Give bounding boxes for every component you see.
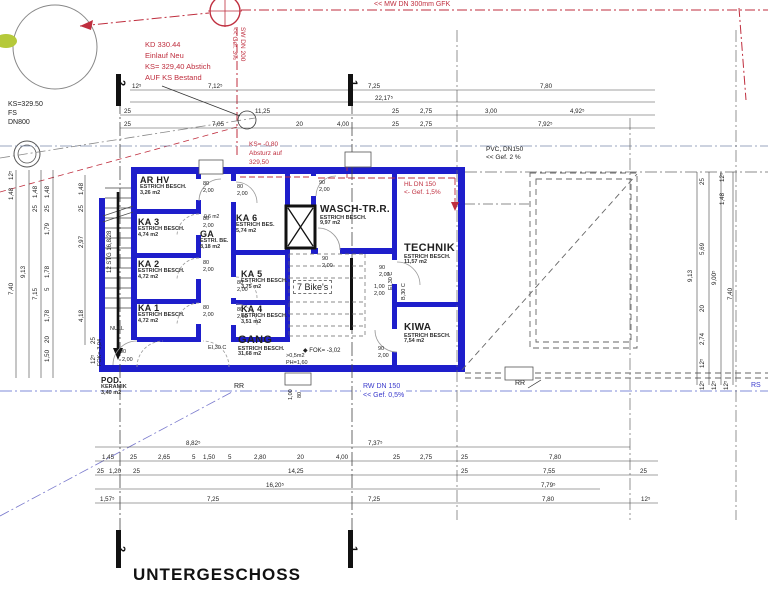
logo-blob: [0, 34, 17, 48]
note-pvc: PVC, DN150 << Gef. 2 %: [486, 146, 523, 162]
dim-label: 5,69: [699, 243, 706, 255]
dim-label: 25: [133, 468, 140, 475]
dim-label: 7,80: [542, 496, 554, 503]
floor-plan-canvas: AR HV ESTRICH BESCH. 3,26 m2 KA 3 ESTRIC…: [0, 0, 768, 593]
note-rr-2: RR: [515, 380, 525, 389]
dim-label: 2,00: [237, 191, 248, 197]
room-label-ka4: KA 4 ESTRICH BESCH. 3,51 m2: [241, 305, 287, 326]
dim-label: 2,00: [374, 291, 385, 297]
dim-label: 12⁵: [723, 381, 730, 390]
dim-label: 12⁵: [699, 359, 706, 368]
room-label-gang: GANG ESTRICH BESCH. 31,68 m2: [238, 335, 284, 358]
room-label-ar-hv: AR HV ESTRICH BESCH. 3,26 m2: [140, 176, 186, 197]
dim-label: 1,00: [374, 284, 385, 290]
dim-label: 7,12⁵: [208, 83, 223, 90]
dim-label: 16,20⁵: [266, 482, 284, 489]
dim-label: 25: [393, 454, 400, 461]
note-mw-dn300: << MW DN 300mm GFK: [374, 1, 450, 10]
dim-label: 25: [32, 205, 39, 212]
dim-label: 2,00: [322, 263, 333, 269]
door-gap-wasch-top: [311, 176, 316, 196]
dim-label: 12⁵: [90, 355, 97, 364]
dim-label: 80: [237, 307, 243, 313]
dim-label: 7,25: [368, 496, 380, 503]
dim-label: 90: [319, 180, 325, 186]
dim-label: 12⁵: [132, 83, 141, 90]
door-gap-arhv: [196, 179, 201, 200]
dim-label: 3,00: [485, 108, 497, 115]
dim-label: EI,30 C: [388, 272, 394, 290]
dim-label: 12⁵: [699, 381, 706, 390]
dim-label: 1,45: [102, 454, 114, 461]
rr-arrow: [528, 380, 541, 388]
room-label-ga: GA ESTRI. BE. 8,18 m2: [200, 230, 228, 251]
dim-label: 2,75: [420, 121, 432, 128]
room-label-ka3: KA 3 ESTRICH BESCH. 4,74 m2: [138, 218, 184, 239]
door-gap-kiwa: [392, 329, 397, 352]
dim-label: 20: [297, 454, 304, 461]
dim-label: 4,18: [78, 310, 85, 322]
dim-label: 2,00: [237, 287, 248, 293]
dim-label: 25: [44, 205, 51, 212]
dim-label: 1,57⁵: [100, 496, 115, 503]
dim-label: 2,00: [237, 314, 248, 320]
door-gap-ka5: [231, 277, 236, 298]
wall-technik-bottom: [392, 302, 465, 307]
door-gap-ka1: [196, 303, 201, 324]
room-label-technik: TECHNIK ESTRICH BESCH. 11,57 m2: [404, 243, 455, 266]
dim-label: 1,48: [44, 186, 51, 198]
dim-label: 2,00: [378, 353, 389, 359]
wall-outer-right: [458, 167, 465, 372]
dim-label: EI,30 C: [208, 345, 226, 351]
dim-label: 2,80: [254, 454, 266, 461]
dim-label: 25: [392, 108, 399, 115]
dim-label: 25: [461, 468, 468, 475]
section-number: 1: [347, 80, 359, 86]
dim-label: 2,75: [420, 454, 432, 461]
section-number: 2: [115, 80, 127, 86]
room-label-wasch: WASCH-TR.R. ESTRICH BESCH. 9,97 m2: [320, 205, 390, 227]
wall-div-ka3-ka2: [131, 253, 201, 258]
door-gap-ka2: [196, 258, 201, 279]
dim-label: 1,48: [78, 183, 85, 195]
dim-label: 1,78: [44, 310, 51, 322]
null-label: NULL: [110, 326, 124, 332]
dim-label: 80: [203, 181, 209, 187]
dim-label: 2,00: [122, 357, 133, 363]
dim-label: 7,80: [549, 454, 561, 461]
dim-label: 20: [296, 121, 303, 128]
dim-label: 25: [461, 454, 468, 461]
leader-line: [162, 86, 240, 116]
page-title: UNTERGESCHOSS: [133, 565, 301, 585]
dim-label: 90: [378, 346, 384, 352]
wall-outer-bottom: [99, 365, 465, 372]
elevator-cross: [288, 208, 313, 246]
dim-label: 7,40: [727, 288, 734, 300]
dim-label: 7,25: [368, 83, 380, 90]
dim-label: 9,00⁵: [711, 270, 718, 285]
note-rs: RS: [751, 382, 761, 391]
dim-label: 14,25: [288, 468, 303, 475]
dim-label: 5: [192, 454, 195, 461]
dim-label: 90: [322, 256, 328, 262]
dim-label: 90: [120, 349, 126, 355]
dim-label: 25: [90, 337, 97, 344]
dim-label: 25: [699, 178, 706, 185]
dim-label: 20: [699, 305, 706, 312]
dim-label: 2,00: [203, 188, 214, 194]
dim-label: 7,40: [8, 283, 15, 295]
dim-label: 1,50: [44, 350, 51, 362]
dim-label: 1,48: [8, 188, 15, 200]
dim-label: 1,00: [288, 389, 294, 400]
dim-label: 12⁵: [8, 171, 15, 180]
dim-label: 80: [297, 392, 303, 398]
dim-label: 1,48: [719, 193, 726, 205]
dim-label: B,30 C: [401, 283, 407, 300]
door-gap-ka6: [231, 181, 236, 202]
wall-div-ka1-gang: [131, 337, 201, 342]
dim-label: 2,00: [319, 187, 330, 193]
dim-label: 22,17⁵: [375, 95, 393, 102]
bike-parking-label: 7 Bike's: [293, 280, 332, 294]
dim-label: 4,00: [336, 454, 348, 461]
dim-label: 25: [392, 121, 399, 128]
dim-label: 1,78: [44, 266, 51, 278]
dim-label: 25: [130, 454, 137, 461]
dim-label: 9,13: [687, 270, 694, 282]
dim-label: 1,79: [44, 223, 51, 235]
dim-label: 90: [379, 265, 385, 271]
dim-label: 25: [124, 121, 131, 128]
wall-div-arhv-ka3: [131, 209, 201, 214]
dim-label: 2,74: [699, 333, 706, 345]
wall-div-ka6-ka5: [231, 250, 290, 255]
dim-label: 2,00: [203, 223, 214, 229]
dim-label: 80: [203, 305, 209, 311]
dim-label: 25: [97, 468, 104, 475]
dim-label: 7,80: [540, 83, 552, 90]
dim-label: 4,00: [337, 121, 349, 128]
room-label-ka6: KA 6 ESTRICH BES. 5,74 m2: [236, 214, 275, 235]
dim-label: 5: [44, 288, 51, 291]
dim-label: 80: [237, 184, 243, 190]
dim-label: 7,15: [32, 288, 39, 300]
room-label-kiwa: KIWA ESTRICH BESCH. 7,54 m2: [404, 323, 450, 345]
level-marker-stair: FOK=-3,04: [97, 339, 103, 366]
site-circle: [13, 5, 97, 89]
manhole-dn800-inner: [18, 145, 36, 163]
sewer-red-lines: [0, 0, 768, 211]
dim-label: 8,82⁵: [186, 440, 201, 447]
room-label-ka1: KA 1 ESTRICH BESCH. 4,72 m2: [138, 304, 184, 325]
dim-label: 11,25: [255, 108, 270, 115]
dim-label: 4,92⁵: [570, 108, 585, 115]
room-label-pod: POD. KERAMIK 3,40 m2: [101, 377, 127, 397]
dim-label: 1,20: [109, 468, 121, 475]
dim-label: 12⁵: [641, 496, 650, 503]
dim-label: 7,25: [207, 496, 219, 503]
dim-label: 12⁵: [719, 173, 726, 182]
note-rr-1: RR: [234, 383, 244, 392]
wall-outer-top: [131, 167, 465, 174]
room-label-ka5: KA 5 ESTRICH BESCH. 3,75 m2: [241, 270, 287, 291]
room-label-ka2: KA 2 ESTRICH BESCH. 4,72 m2: [138, 260, 184, 281]
note-ks-top: KS=329.50 FS DN800: [8, 101, 43, 127]
section-number: 1: [347, 546, 359, 552]
dim-label: 1,50: [203, 454, 215, 461]
note-absturz: KS= -0,80 Absturz auf 329,50: [249, 141, 282, 167]
dim-label: 80: [203, 260, 209, 266]
section-number: 2: [115, 546, 127, 552]
note-rw-dn150: RW DN 150 << Gef. 0,5%: [361, 383, 406, 401]
door-gap-wasch: [318, 248, 340, 254]
note-hl-dn150: HL DN 150 <- Gef. 1,5%: [404, 181, 441, 197]
dim-label: 2,97: [78, 236, 85, 248]
dim-label: 2,00: [203, 267, 214, 273]
dim-label: 7,55: [543, 468, 555, 475]
note-kd: KD 330.44 Einlauf Neu KS= 329,40 Abstich…: [145, 40, 211, 84]
dim-label: 2,75: [420, 108, 432, 115]
manhole-dn800-outer: [14, 141, 40, 167]
stair-count-label: 12 STG 16,8/28: [107, 231, 113, 273]
dim-label: 7,37⁵: [368, 440, 383, 447]
dim-label: 12⁵: [711, 381, 718, 390]
dim-label: 25: [124, 108, 131, 115]
dim-label: 20: [44, 336, 51, 343]
note-sw-dn200: SW DN 200 << Gef. 3%: [230, 27, 246, 61]
dim-label: 9,13: [20, 266, 27, 278]
dim-label: 7,92⁵: [538, 121, 553, 128]
drain-circle: [238, 111, 256, 129]
dim-label: 2,65: [158, 454, 170, 461]
dim-label: 25: [78, 205, 85, 212]
dim-label: 7,05: [212, 121, 224, 128]
dim-label: 5: [228, 454, 231, 461]
window-note: >0,5m2 PH=1,60: [286, 353, 308, 367]
dim-label: 7,79⁵: [541, 482, 556, 489]
dim-label: 1,48: [32, 186, 39, 198]
dim-label: 80: [237, 280, 243, 286]
dim-label: 2,00: [203, 312, 214, 318]
dim-label: 80: [203, 216, 209, 222]
door-gap-ka4: [231, 304, 236, 325]
dim-label: 25: [640, 468, 647, 475]
level-marker-gang: ◆ FOK= -3,02: [303, 347, 340, 354]
